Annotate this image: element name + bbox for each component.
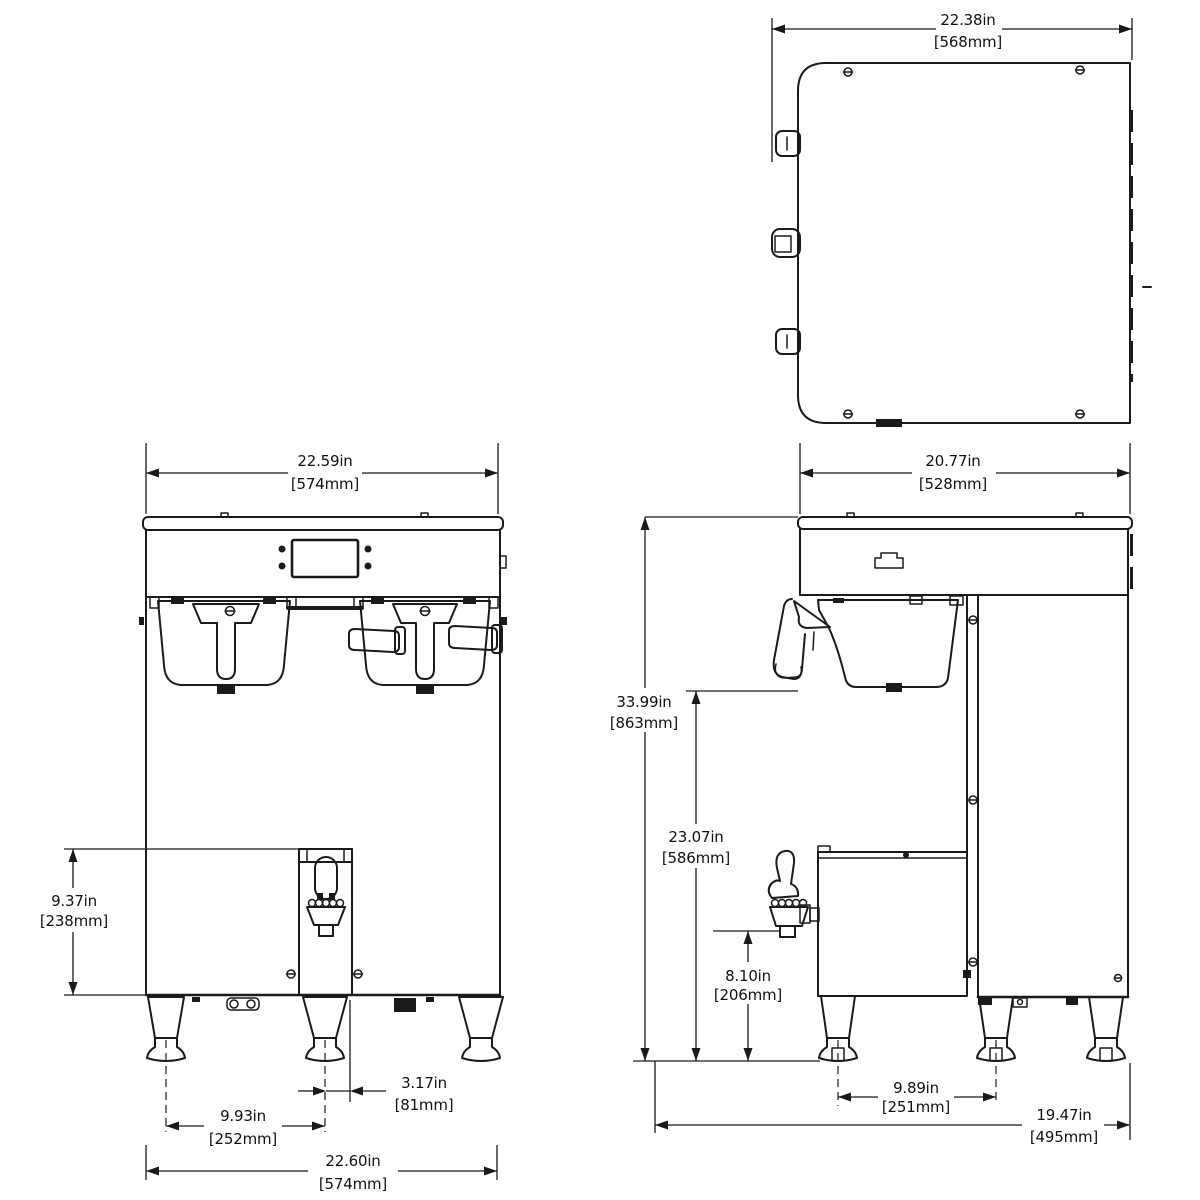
hot-water-faucet-front (307, 857, 345, 936)
front-view: 22.59in [574mm] (40, 443, 507, 1193)
corner-screw-icon (844, 410, 853, 418)
dim-front-overall-width-in-label: 22.60in (325, 1152, 380, 1170)
dim-top-width-mm-label: [568mm] (934, 33, 1002, 51)
drain-port (394, 998, 416, 1012)
funnel-drip-tip (886, 683, 902, 692)
right-brew-funnel (349, 597, 502, 694)
base-fitting (1066, 997, 1078, 1005)
side-rear-leg (1087, 997, 1125, 1061)
panel-screw-icon (354, 970, 363, 978)
column-screw-icon (969, 958, 978, 966)
base-tab (426, 997, 434, 1002)
top-view: 22.38in [568mm] (772, 11, 1151, 427)
side-view: 20.77in [528mm] (610, 443, 1132, 1146)
top-cap (798, 517, 1132, 529)
side-mount-tab (776, 329, 800, 354)
top-cap (143, 517, 503, 530)
cap-hook (221, 513, 228, 517)
right-edge-tab (501, 617, 507, 625)
dim-overall-height-in-label: 33.99in (616, 693, 671, 711)
dim-top-width: 22.38in [568mm] (772, 11, 1132, 162)
dim-faucet-height: 8.10in [206mm] (713, 931, 782, 1061)
left-brew-funnel (150, 597, 296, 694)
corner-screw-icon (1076, 410, 1085, 418)
side-front-leg (819, 996, 857, 1106)
head-section (800, 529, 1128, 595)
dim-front-overall-width: 22.60in [574mm] (146, 1145, 497, 1193)
head-detail-tab (875, 553, 903, 568)
base-fitting (978, 997, 992, 1005)
dim-front-leg-spacing-in-label: 9.93in (220, 1107, 266, 1125)
display-screen (292, 540, 358, 577)
dim-counter-height-in-label: 23.07in (668, 828, 723, 846)
funnel-screw-icon (225, 607, 235, 616)
dim-overall-depth-mm-label: [495mm] (1030, 1128, 1098, 1146)
drawing-canvas: 22.38in [568mm] (0, 0, 1200, 1200)
dim-side-top-depth-in-label: 20.77in (925, 452, 980, 470)
bottom-edge-mark (876, 419, 902, 427)
funnel-drip-tip (217, 684, 235, 694)
dim-front-top-width-in-label: 22.59in (297, 452, 352, 470)
hot-water-faucet-side (769, 851, 819, 937)
dim-top-width-in-label: 22.38in (940, 11, 995, 29)
side-middle-leg (977, 997, 1015, 1104)
dim-faucet-height-in-label: 8.10in (725, 967, 771, 985)
dim-side-leg-spacing: 9.89in [251mm] (838, 1079, 996, 1116)
top-view-body-outline (798, 63, 1130, 423)
dim-side-top-depth: 20.77in [528mm] (800, 443, 1130, 514)
dim-counter-height-mm-label: [586mm] (662, 849, 730, 867)
dim-side-top-depth-mm-label: [528mm] (919, 475, 987, 493)
mounting-bracket (227, 998, 259, 1010)
dim-overall-height-mm-label: [863mm] (610, 714, 678, 732)
dim-center-leg-offset-in-label: 3.17in (401, 1074, 447, 1092)
dim-side-leg-spacing-mm-label: [251mm] (882, 1098, 950, 1116)
dim-server-height-mm-label: [238mm] (40, 912, 108, 930)
dim-front-leg-spacing-mm-label: [252mm] (209, 1130, 277, 1148)
dim-front-top-width-mm-label: [574mm] (291, 475, 359, 493)
base-tab (192, 997, 200, 1002)
funnel-screw-icon (420, 607, 430, 616)
side-mount-tab (776, 131, 800, 156)
funnel-handle (193, 604, 259, 679)
dim-server-height-in-label: 9.37in (51, 892, 97, 910)
dim-front-top-width: 22.59in [574mm] (146, 443, 498, 514)
column-screw-icon (969, 616, 978, 624)
cap-hook (847, 513, 854, 517)
brewer-dimension-drawing: 22.38in [568mm] (0, 0, 1200, 1200)
funnel-drip-tip (416, 684, 434, 694)
left-edge-tab (139, 617, 144, 625)
panel-screw-icon (287, 970, 296, 978)
column-screw-icon (969, 796, 978, 804)
dim-server-height: 9.37in [238mm] (40, 849, 299, 995)
cap-hook (1076, 513, 1083, 517)
dim-center-leg-offset: 3.17in [81mm] (298, 1000, 453, 1114)
base-bracket (1013, 998, 1027, 1007)
corner-screw-icon (1076, 66, 1085, 74)
dim-overall-depth-in-label: 19.47in (1036, 1106, 1091, 1124)
support-column (963, 595, 978, 997)
front-right-leg (459, 997, 503, 1061)
dim-counter-height: 23.07in [586mm] (662, 691, 798, 1061)
dim-center-leg-offset-mm-label: [81mm] (395, 1096, 454, 1114)
front-left-leg (147, 997, 185, 1132)
hot-water-server-front (287, 849, 363, 995)
rear-panel-screw-icon (1115, 975, 1122, 982)
hot-water-server-side (769, 846, 967, 996)
corner-screw-icon (844, 68, 853, 76)
water-inlet-fitting (772, 229, 800, 257)
cap-hook (421, 513, 428, 517)
front-center-leg (303, 997, 347, 1132)
dim-front-overall-width-mm-label: [574mm] (319, 1175, 387, 1193)
dim-side-leg-spacing-in-label: 9.89in (893, 1079, 939, 1097)
dim-front-leg-spacing: 9.93in [252mm] (166, 1107, 325, 1148)
funnel-side-profile (774, 596, 963, 692)
dim-faucet-height-mm-label: [206mm] (714, 986, 782, 1004)
funnel-side-wings (349, 625, 502, 654)
